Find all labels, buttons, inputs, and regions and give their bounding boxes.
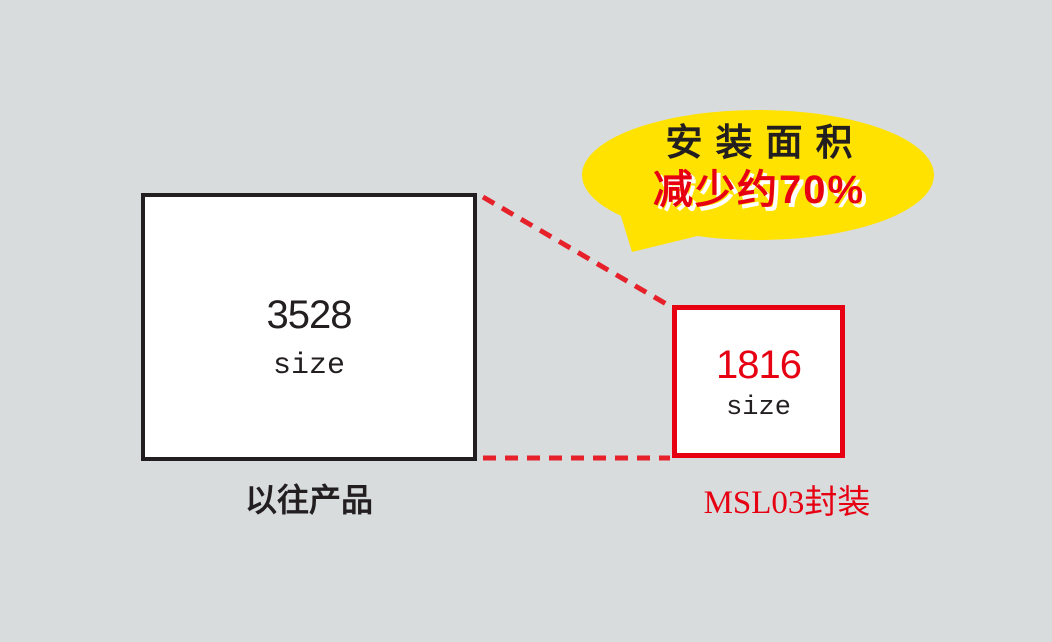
callout-text: 安装面积 减少约70% bbox=[583, 121, 935, 212]
callout-line2: 减少约70% bbox=[583, 168, 935, 212]
previous-product-size-number: 3528 bbox=[267, 295, 352, 335]
new-product-size-label: size bbox=[726, 395, 791, 422]
previous-product-caption: 以往产品 bbox=[141, 483, 477, 518]
new-product-caption: MSL03封装 bbox=[667, 485, 907, 521]
size-comparison-diagram: 3528 size 以往产品 1816 size MSL03封装 安装面积 减少… bbox=[0, 0, 1052, 642]
previous-product-size-label: size bbox=[273, 351, 345, 381]
previous-product-box: 3528 size bbox=[141, 193, 477, 461]
callout-line1: 安装面积 bbox=[583, 121, 935, 165]
new-product-size-number: 1816 bbox=[716, 345, 801, 385]
new-product-box: 1816 size bbox=[672, 305, 845, 458]
